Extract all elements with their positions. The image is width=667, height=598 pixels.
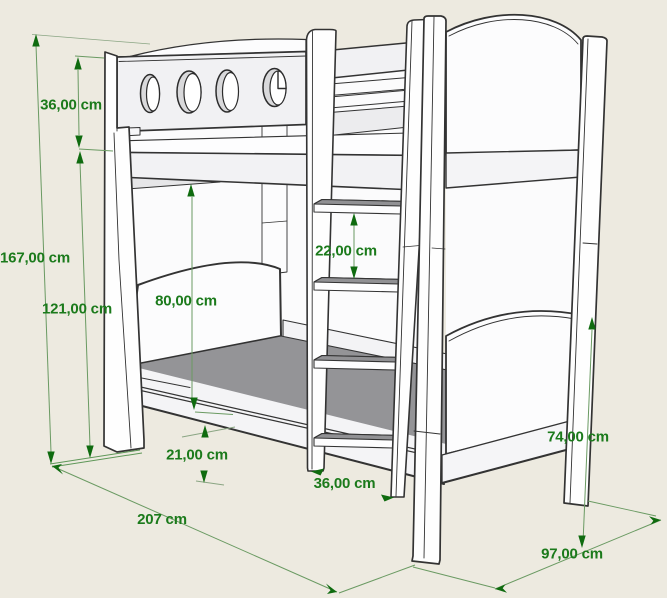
svg-text:167,00 cm: 167,00 cm	[0, 250, 70, 267]
svg-text:74,00 cm: 74,00 cm	[547, 429, 609, 446]
svg-text:121,00 cm: 121,00 cm	[42, 301, 112, 318]
svg-text:22,00 cm: 22,00 cm	[315, 243, 377, 260]
svg-text:97,00 cm: 97,00 cm	[541, 546, 603, 563]
svg-text:36,00 cm: 36,00 cm	[314, 475, 376, 492]
svg-text:36,00 cm: 36,00 cm	[40, 97, 102, 114]
svg-text:207 cm: 207 cm	[137, 511, 187, 528]
svg-text:80,00 cm: 80,00 cm	[155, 293, 217, 310]
svg-text:21,00 cm: 21,00 cm	[166, 447, 228, 464]
